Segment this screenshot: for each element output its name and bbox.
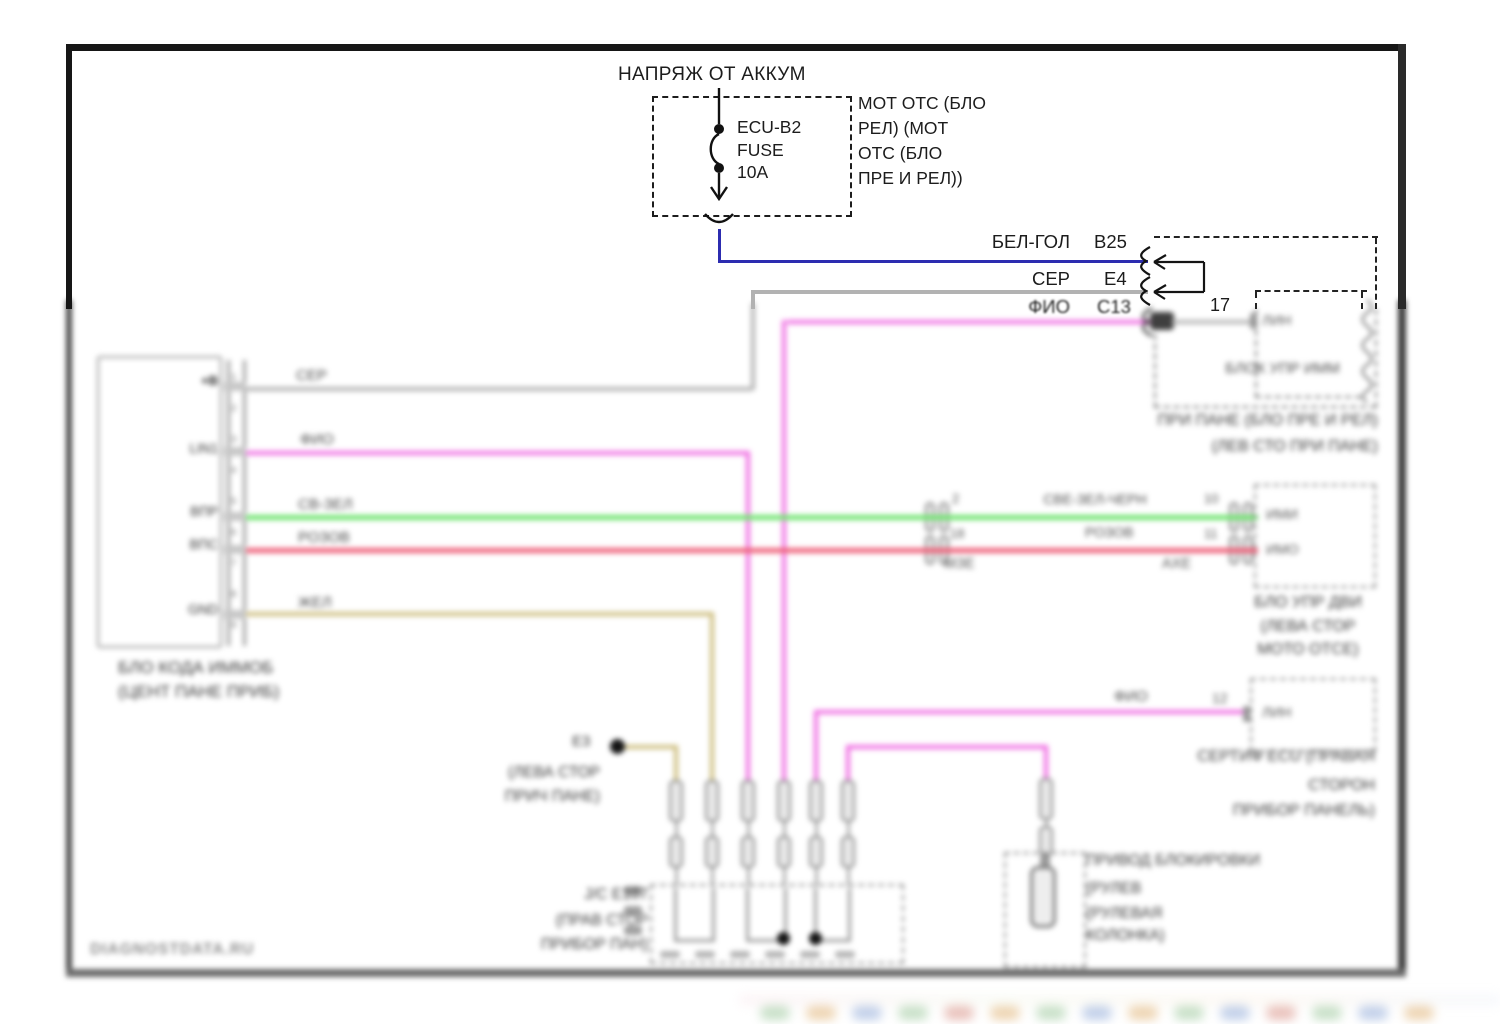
strip-dot	[1220, 1006, 1250, 1020]
strip-dot	[1358, 1006, 1388, 1020]
strip-dot	[990, 1006, 1020, 1020]
strip-dot	[1082, 1006, 1112, 1020]
strip-dot	[852, 1006, 882, 1020]
strip-dot	[760, 1006, 790, 1020]
strip-dot	[944, 1006, 974, 1020]
bottom-strip-layer	[0, 0, 1500, 1024]
strip-dot	[1266, 1006, 1296, 1020]
strip-dot	[1174, 1006, 1204, 1020]
strip-dot	[806, 1006, 836, 1020]
wiring-diagram-page: 1 2 3 4 5 6 7 8 9 +B LIN1 ВПР ВПС GND БЛ…	[0, 0, 1500, 1024]
strip-dot	[1404, 1006, 1434, 1020]
strip-dot	[1128, 1006, 1158, 1020]
strip-dot	[898, 1006, 928, 1020]
strip-dot	[1312, 1006, 1342, 1020]
strip-haze	[740, 994, 1500, 1006]
strip-dot	[1036, 1006, 1066, 1020]
